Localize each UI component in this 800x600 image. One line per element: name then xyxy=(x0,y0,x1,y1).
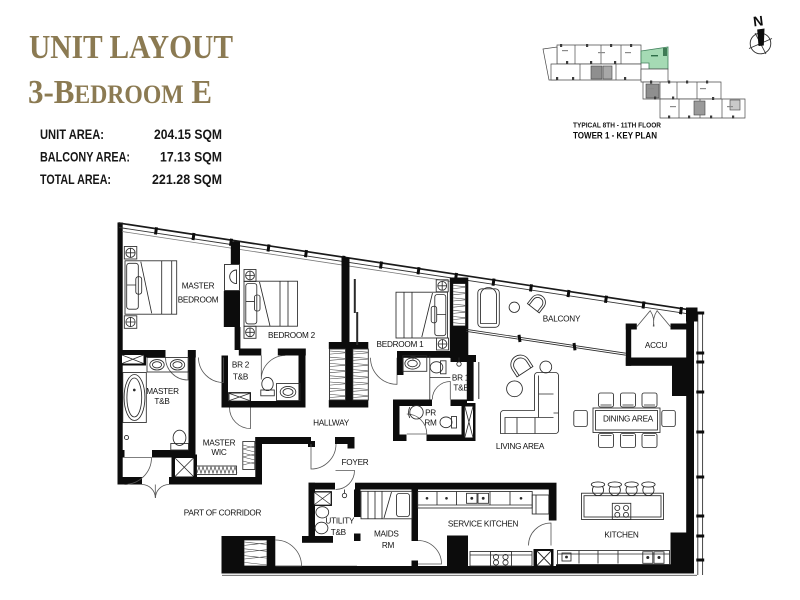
svg-text:T&B: T&B xyxy=(331,528,347,537)
svg-text:MASTER: MASTER xyxy=(182,282,215,291)
svg-text:N: N xyxy=(752,12,764,29)
svg-text:TOWER 1 - KEY PLAN: TOWER 1 - KEY PLAN xyxy=(573,131,657,141)
svg-text:BR 2: BR 2 xyxy=(232,361,250,370)
svg-text:221.28 SQM: 221.28 SQM xyxy=(152,171,222,187)
svg-text:KITCHEN: KITCHEN xyxy=(604,531,639,540)
svg-text:SERVICE KITCHEN: SERVICE KITCHEN xyxy=(448,520,519,529)
svg-text:LIVING AREA: LIVING AREA xyxy=(496,442,545,451)
svg-text:MASTER: MASTER xyxy=(203,438,236,447)
svg-text:RM: RM xyxy=(382,541,395,550)
svg-text:204.15 SQM: 204.15 SQM xyxy=(154,126,222,142)
svg-text:BR 1: BR 1 xyxy=(452,374,470,383)
svg-text:MAIDS: MAIDS xyxy=(374,530,399,539)
svg-text:3-BEDROOM E: 3-BEDROOM E xyxy=(28,74,212,111)
svg-text:T&B: T&B xyxy=(453,384,469,393)
svg-text:DINING AREA: DINING AREA xyxy=(603,414,654,423)
svg-text:UTILITY: UTILITY xyxy=(325,516,355,525)
svg-text:TOTAL AREA:: TOTAL AREA: xyxy=(40,171,111,187)
svg-text:17.13 SQM: 17.13 SQM xyxy=(160,149,222,165)
svg-text:PART OF CORRIDOR: PART OF CORRIDOR xyxy=(184,509,262,518)
svg-text:BALCONY: BALCONY xyxy=(543,315,581,324)
svg-text:FOYER: FOYER xyxy=(342,458,369,467)
svg-text:PR: PR xyxy=(425,409,436,418)
svg-text:UNIT LAYOUT: UNIT LAYOUT xyxy=(29,29,233,66)
svg-text:T&B: T&B xyxy=(154,397,170,406)
svg-text:BALCONY AREA:: BALCONY AREA: xyxy=(40,149,130,165)
svg-text:RM: RM xyxy=(424,419,437,428)
svg-text:BEDROOM 2: BEDROOM 2 xyxy=(268,331,316,340)
svg-text:T&B: T&B xyxy=(233,373,249,382)
svg-text:ACCU: ACCU xyxy=(645,341,668,350)
svg-text:UNIT AREA:: UNIT AREA: xyxy=(40,126,104,142)
svg-text:BEDROOM: BEDROOM xyxy=(178,296,219,305)
svg-text:WIC: WIC xyxy=(211,448,227,457)
svg-text:TYPICAL 8TH - 11TH FLOOR: TYPICAL 8TH - 11TH FLOOR xyxy=(573,121,661,130)
svg-text:BEDROOM 1: BEDROOM 1 xyxy=(377,340,425,349)
svg-text:HALLWAY: HALLWAY xyxy=(313,418,350,427)
svg-text:MASTER: MASTER xyxy=(146,387,179,396)
